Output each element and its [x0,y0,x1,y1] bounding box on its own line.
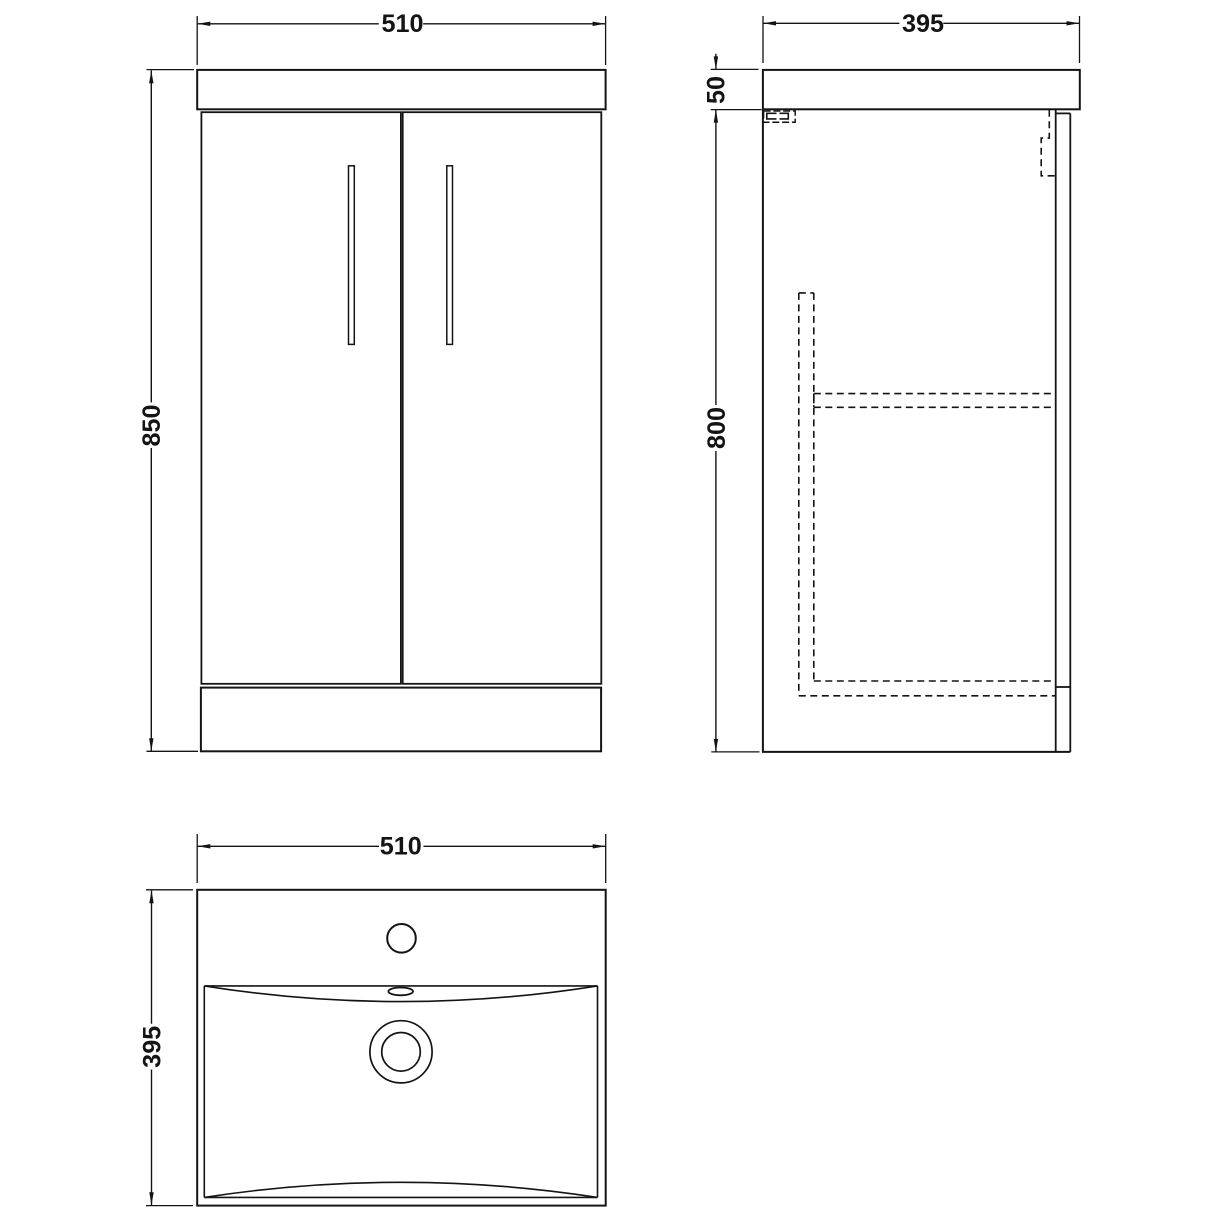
svg-text:510: 510 [380,832,422,860]
svg-text:850: 850 [138,404,166,446]
svg-text:395: 395 [138,1026,166,1068]
svg-text:800: 800 [703,407,731,449]
svg-text:395: 395 [902,10,944,38]
svg-text:510: 510 [381,10,423,38]
svg-text:50: 50 [703,76,731,104]
